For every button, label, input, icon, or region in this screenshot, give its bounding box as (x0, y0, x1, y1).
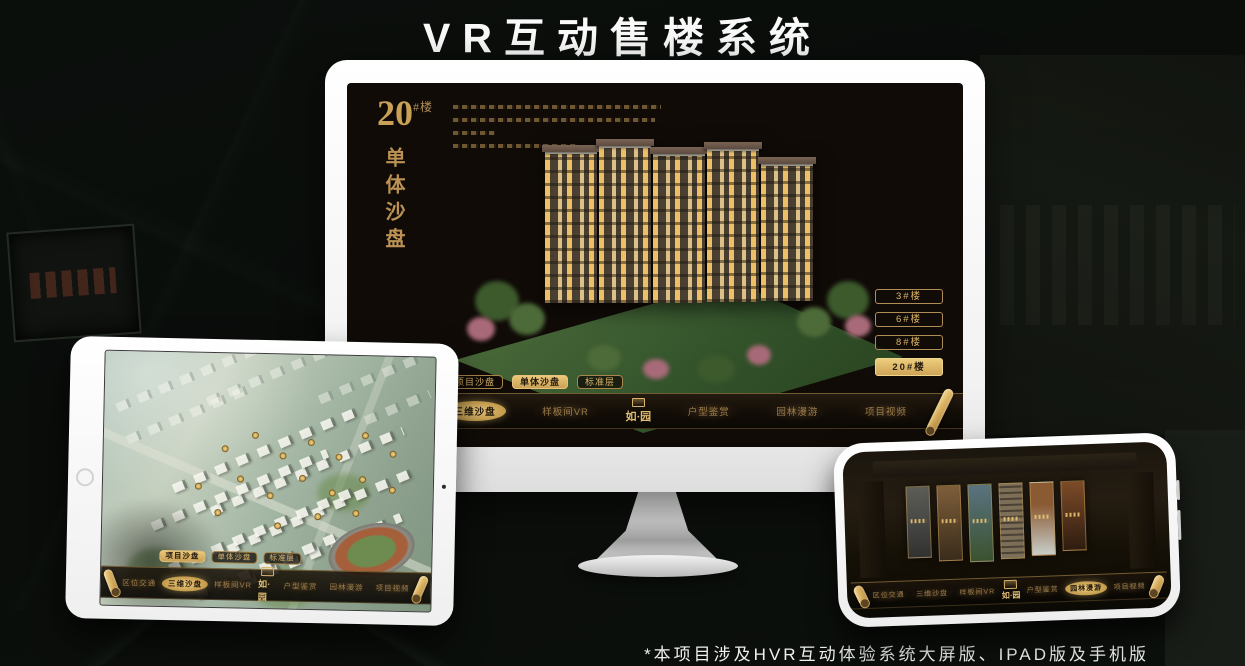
scene-card-garden[interactable] (967, 484, 994, 563)
brand-logo-icon (632, 398, 645, 407)
interior-wall (1127, 472, 1156, 569)
tablet-camera-dot (442, 485, 446, 489)
nav-item-showroom-vr[interactable]: 样板间VR (208, 576, 258, 592)
building-segment (707, 148, 759, 302)
nav-item-showroom-vr[interactable]: 样板间VR (954, 584, 1000, 600)
subtab-standard-floor[interactable]: 标准层 (263, 552, 301, 565)
building-segment (599, 145, 651, 303)
building-number-badge[interactable] (267, 492, 274, 499)
nav-item-floorplans[interactable]: 户型鉴赏 (1021, 582, 1063, 597)
nav-item-project-video[interactable]: 项目视频 (1108, 579, 1150, 594)
nav-item-garden-tour[interactable]: 园林漫游 (1065, 580, 1107, 595)
nav-item-floorplans[interactable]: 户型鉴赏 (678, 401, 740, 421)
building-number-badge[interactable] (279, 452, 286, 459)
scene-card-kitchen[interactable] (936, 485, 963, 562)
scene-card-building[interactable] (998, 482, 1025, 559)
building-heading: 20#楼 (377, 95, 433, 131)
building-segment (545, 151, 597, 303)
brand-logo-icon (261, 567, 274, 576)
scene-card-autumn[interactable] (1029, 481, 1056, 556)
scroll-ornament-icon (1148, 574, 1165, 597)
nav-item-location[interactable]: 区位交通 (116, 574, 162, 590)
footnote-caption: *本项目涉及HVR互动体验系统大屏版、IPAD版及手机版 (644, 640, 1149, 665)
building-segment (653, 153, 705, 303)
brand-logo: 如·园 (1001, 580, 1020, 602)
heading-vertical-calligraphy: 单体沙盘 (379, 147, 408, 277)
flower-shrub (643, 359, 669, 379)
building-number-badge[interactable] (390, 451, 397, 458)
tree (509, 303, 545, 335)
interior-wall (857, 481, 886, 578)
intro-line (453, 105, 661, 109)
brand-logo-text: 如·园 (258, 577, 278, 603)
subtab-single-sandtable[interactable]: 单体沙盘 (211, 551, 257, 564)
subtab-single-sandtable[interactable]: 单体沙盘 (512, 375, 568, 389)
building-number-badge[interactable] (389, 487, 396, 494)
nav-item-garden-tour[interactable]: 园林漫游 (323, 579, 369, 595)
nav-item-3d-sandtable[interactable]: 三维沙盘 (162, 575, 208, 591)
subtab-project-sandtable[interactable]: 项目沙盘 (159, 550, 205, 563)
flower-shrub (467, 317, 495, 341)
brand-logo-text: 如·园 (1002, 590, 1021, 602)
tablet-screen: 项目沙盘 单体沙盘 标准层 区位交通 三维沙盘 样板间VR 如·园 户型鉴赏 园… (99, 350, 436, 613)
tablet-device: 项目沙盘 单体沙盘 标准层 区位交通 三维沙盘 样板间VR 如·园 户型鉴赏 园… (65, 336, 459, 626)
nav-item-project-video[interactable]: 项目视频 (369, 580, 415, 596)
scene-card-study[interactable] (1060, 480, 1086, 551)
scene-card-interior[interactable] (905, 486, 931, 559)
nav-item-garden-tour[interactable]: 园林漫游 (766, 401, 828, 421)
nav-item-showroom-vr[interactable]: 样板间VR (532, 401, 599, 421)
sandtable-sub-tabs: 项目沙盘 单体沙盘 标准层 (447, 375, 623, 389)
building-number-badge[interactable] (314, 513, 321, 520)
brand-logo: 如·园 (258, 567, 278, 603)
scene-card-strip (905, 480, 1087, 564)
tree (797, 307, 831, 337)
floor-button-3[interactable]: 3#楼 (875, 289, 943, 304)
building-number-suffix: #楼 (413, 100, 433, 114)
background-river-photo (980, 55, 1245, 435)
brand-logo: 如·园 (625, 398, 651, 424)
page-title: VR互动售楼系统 (0, 4, 1245, 64)
building-number: 20 (377, 93, 413, 133)
phone-device: 区位交通 三维沙盘 样板间VR 如·园 户型鉴赏 园林漫游 项目视频 (833, 432, 1181, 628)
flower-shrub (747, 345, 771, 365)
floor-button-20[interactable]: 20#楼 (875, 358, 943, 376)
tree (587, 345, 621, 371)
phone-bottom-nav: 区位交通 三维沙盘 样板间VR 如·园 户型鉴赏 园林漫游 项目视频 (851, 571, 1168, 609)
building-segment (761, 163, 813, 301)
building-number-badge[interactable] (308, 439, 315, 446)
intro-line (453, 118, 655, 122)
brand-logo-icon (1004, 580, 1017, 589)
building-number-badge[interactable] (329, 489, 336, 496)
floor-selector: 3#楼 6#楼 8#楼 20#楼 (875, 289, 943, 376)
subtab-standard-floor[interactable]: 标准层 (577, 375, 623, 389)
building-number-badge[interactable] (362, 432, 369, 439)
residential-building-model (545, 145, 813, 305)
nav-item-floorplans[interactable]: 户型鉴赏 (277, 578, 323, 594)
nav-item-project-video[interactable]: 项目视频 (855, 401, 917, 421)
monitor-stand-neck (592, 490, 722, 560)
building-number-badge[interactable] (352, 510, 359, 517)
brand-logo-text: 如·园 (625, 408, 651, 424)
floor-button-8[interactable]: 8#楼 (875, 335, 943, 350)
flower-shrub (845, 315, 871, 337)
tablet-home-button[interactable] (76, 468, 94, 486)
floor-button-6[interactable]: 6#楼 (875, 312, 943, 327)
phone-screen: 区位交通 三维沙盘 样板间VR 如·园 户型鉴赏 园林漫游 项目视频 (842, 441, 1172, 618)
interior-lintel (873, 452, 1137, 477)
building-model-scene[interactable] (447, 131, 917, 411)
nav-item-location[interactable]: 区位交通 (867, 587, 909, 602)
nav-item-3d-sandtable[interactable]: 三维沙盘 (911, 585, 953, 600)
phone-side-button[interactable] (1177, 510, 1181, 540)
phone-side-button[interactable] (1176, 480, 1180, 500)
tree (827, 281, 869, 319)
tree (697, 355, 735, 383)
monitor-stand-base (578, 555, 738, 577)
poster-canvas: VR互动售楼系统 20#楼 单体沙盘 (0, 0, 1245, 666)
background-plaque-photo (6, 224, 141, 343)
